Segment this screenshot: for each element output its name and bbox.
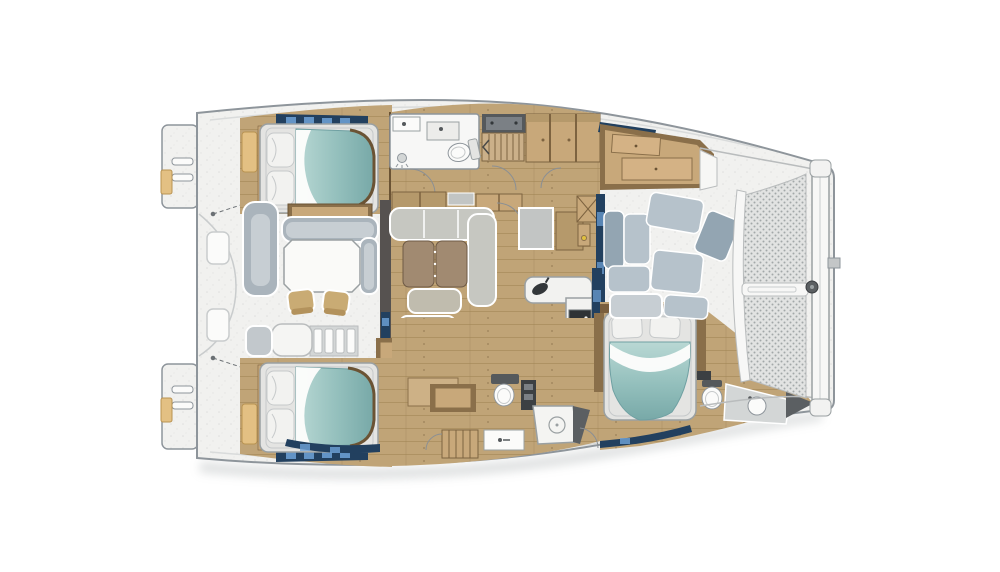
hanging-locker — [577, 196, 599, 222]
ottoman — [408, 289, 461, 313]
pillow — [649, 316, 680, 339]
toilet-cistern — [491, 374, 519, 384]
sink-counter — [393, 117, 420, 131]
seat-cushion — [608, 266, 650, 292]
forestay-fitting — [828, 258, 840, 268]
deck-hatch — [207, 309, 229, 341]
tramp-divider-bar — [742, 283, 808, 296]
helm-module — [272, 324, 312, 356]
saloon-table-leaf — [436, 241, 467, 287]
seat-cushion — [663, 294, 708, 319]
cockpit-steps — [310, 326, 358, 356]
floorplan-svg — [0, 0, 1000, 572]
deck-chair — [287, 288, 316, 315]
aft-cockpit — [243, 202, 378, 356]
forestay-cap-bottom — [810, 399, 831, 416]
side-cabinet — [594, 313, 604, 392]
seat-cushion — [604, 211, 624, 269]
cockpit-seat-table — [610, 294, 662, 318]
deck-hatch — [207, 232, 229, 264]
faucet-icon — [498, 438, 502, 442]
pillow — [611, 316, 642, 339]
switch-panel — [697, 371, 711, 380]
forward-cabin-starboard — [594, 304, 711, 420]
sofa-arm — [468, 214, 496, 306]
deck-chair — [322, 289, 351, 316]
saloon-table-leaf — [403, 241, 434, 287]
nav-seat — [519, 208, 553, 249]
forestay-cap-top — [810, 160, 831, 177]
faucet-icon — [402, 122, 406, 126]
seat-cushion — [650, 249, 704, 294]
hull-cabinets — [526, 114, 600, 162]
transom-platform-port — [162, 125, 198, 208]
stair-treads — [482, 133, 524, 161]
toilet — [494, 384, 514, 406]
cockpit-table — [284, 240, 360, 292]
faucet-icon — [439, 127, 443, 131]
catamaran-floorplan — [0, 0, 1000, 572]
side-cabinet — [696, 313, 706, 378]
aft-cabin-port-berth — [242, 114, 378, 213]
helm-module-pad — [246, 326, 272, 356]
toilet-cistern — [702, 380, 722, 387]
companionway-stairs — [482, 114, 526, 161]
vanity-counter — [427, 122, 459, 140]
